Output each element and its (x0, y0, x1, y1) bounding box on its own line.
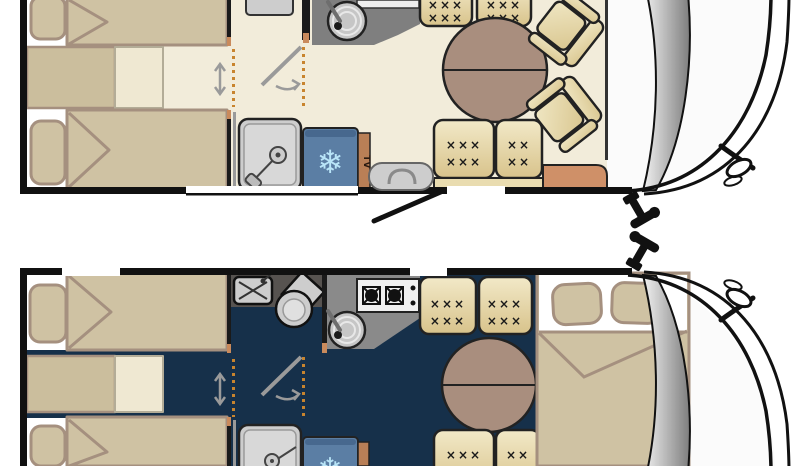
shower-room (239, 119, 301, 190)
entry-step (369, 163, 433, 190)
upholstery-marks: ××× (487, 297, 523, 311)
twin-bed-bottom (67, 110, 227, 189)
skirt-line (186, 193, 358, 196)
upholstery-marks: ××× (446, 448, 482, 462)
sliding-door-track (233, 420, 236, 466)
floorplan-night: ××× ××× ××× ××× ××× ×× (20, 229, 789, 466)
door-post (322, 343, 327, 353)
hob-knob (411, 286, 416, 291)
upholstery-marks: ×× (507, 155, 531, 169)
tv-label: TV (361, 155, 371, 168)
burner (363, 287, 380, 304)
toilet-cut (246, 0, 293, 15)
wall (227, 110, 231, 190)
overcab-bed-edge (605, 0, 608, 160)
burner (386, 287, 403, 304)
door-post (227, 417, 231, 426)
pillow (31, 0, 65, 39)
pillow (31, 121, 65, 184)
snowflake-icon: ❄ (317, 143, 344, 181)
pillow (30, 285, 66, 342)
fridge-lip (305, 130, 356, 137)
door-post (303, 33, 309, 43)
door-post (227, 110, 231, 119)
awning-crank-icon (616, 229, 661, 275)
fridge-lip (305, 439, 356, 445)
bed-cabinet (27, 47, 115, 108)
shower-room (239, 425, 301, 466)
tv-strip (358, 442, 369, 466)
upholstery-marks: ×× (507, 138, 531, 152)
sliding-door-track (233, 112, 236, 190)
rear-wall (20, 275, 27, 466)
upholstery-marks: ××× (430, 297, 466, 311)
upholstery-marks: ××× (446, 138, 482, 152)
upholstery-marks: ××× (430, 314, 466, 328)
rear-wall (20, 0, 27, 191)
open-door-line (374, 191, 443, 221)
pillow (31, 426, 65, 466)
upholstery-marks: ×× (506, 448, 530, 462)
floorplans-canvas: ××× ××× ××× ××× ××× ××× ×× ×× (0, 0, 796, 466)
door-post (227, 37, 231, 46)
upholstery-marks: ××× (446, 155, 482, 169)
twin-bed-top (67, 0, 227, 45)
headlight (723, 174, 743, 187)
drain-dot (276, 153, 281, 158)
upholstery-marks: ××× (428, 11, 464, 25)
drain (334, 22, 342, 30)
twin-bed-top (67, 273, 227, 350)
headlight (723, 278, 743, 291)
door-opening (447, 186, 505, 195)
fridge: ❄ (303, 437, 358, 466)
hob (357, 0, 419, 8)
hob-knob (411, 301, 416, 306)
upholstery-marks: ××× (487, 314, 523, 328)
floorplan-viewer: ××× ××× ××× ××× ××× ××× ×× ×× (0, 0, 796, 466)
wall (227, 273, 231, 353)
floorplan-day: ××× ××× ××× ××× ××× ××× ×× ×× (20, 0, 789, 231)
window-gap (62, 267, 120, 276)
bed-step-cabinet (115, 47, 163, 108)
drain (334, 331, 342, 339)
toilet-seat (283, 299, 305, 321)
bed-cabinet (27, 356, 115, 412)
window-gap (410, 267, 447, 276)
pillow (552, 283, 602, 325)
fridge: ❄ (303, 128, 358, 190)
cab-step-base (543, 165, 607, 190)
wall (322, 273, 327, 352)
bed-step-cabinet (115, 356, 163, 412)
door-post (227, 344, 231, 353)
snowflake-icon: ❄ (317, 452, 342, 466)
drain-dot (270, 459, 274, 463)
